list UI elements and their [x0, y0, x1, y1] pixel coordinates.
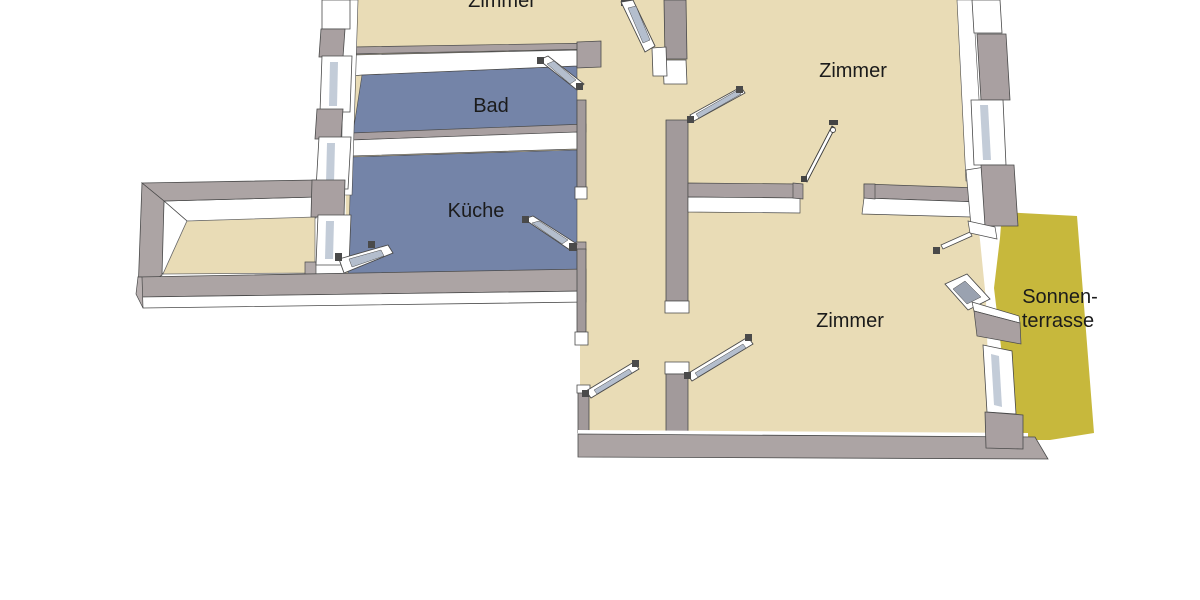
svg-text:terrasse: terrasse [1022, 310, 1094, 332]
svg-text:Küche: Küche [448, 200, 505, 222]
svg-text:Zimmer: Zimmer [468, 0, 536, 12]
svg-text:Sonnen-: Sonnen- [1022, 286, 1098, 308]
svg-text:Bad: Bad [473, 95, 509, 117]
svg-text:Zimmer: Zimmer [819, 60, 887, 82]
svg-text:Zimmer: Zimmer [816, 310, 884, 332]
